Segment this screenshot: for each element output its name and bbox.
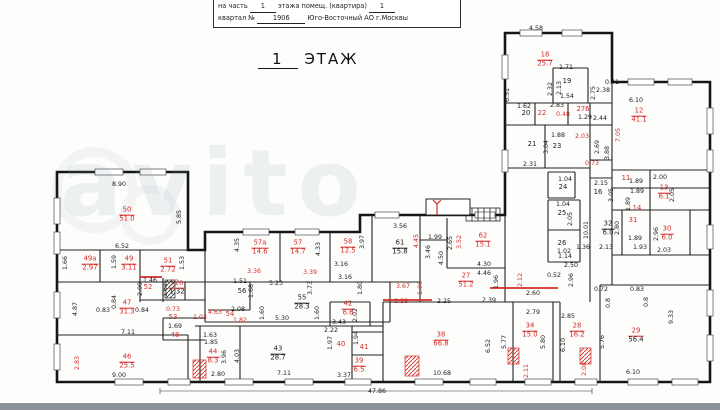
dim-label: 0.73 (585, 161, 599, 167)
dim-label: 4.30 (477, 262, 491, 268)
dim-label: 4.87 (73, 302, 79, 316)
dim-label: 3.16 (334, 262, 348, 268)
dim-label: 1.04 (558, 177, 572, 183)
dim-label: 6.10 (561, 338, 567, 352)
dim-label: 1.82 (233, 318, 247, 324)
dim-label: 5.23 (269, 281, 283, 287)
room-label: 3866.8 (433, 332, 448, 349)
dim-label: 1.69 (168, 324, 182, 330)
dim-label: 0.48 (556, 112, 570, 118)
dim-label: 2.80 (615, 221, 621, 235)
room-label: 5051.0 (119, 207, 134, 224)
dim-label: 3.97 (360, 235, 366, 249)
dim-label: 7.11 (277, 371, 291, 377)
dim-label: 5.76 (600, 335, 606, 349)
dim-label: 2.09 (138, 282, 144, 296)
dim-label: 2.85 (561, 314, 575, 320)
dim-label: 4.35 (235, 238, 241, 252)
room-label: 5528.3 (294, 295, 309, 312)
dim-label: 3.88 (605, 146, 611, 160)
dim-label: 2.38 (596, 88, 610, 94)
labels-layer: 5051.049а2.97493.11512.724731.34625.5525… (0, 0, 720, 410)
dim-label: 5.80 (541, 335, 547, 349)
dim-label: 6.51 (505, 88, 511, 102)
dim-label: 2.22 (324, 328, 338, 334)
room-label: 2751.2 (458, 273, 473, 290)
dim-label: 3.56 (393, 224, 407, 230)
dim-label: 1.96 (494, 275, 500, 289)
dim-label: 2.05 (670, 188, 676, 202)
dim-label: 1.36 (576, 245, 590, 251)
dim-label: 1.89 (630, 189, 644, 195)
dim-label: 1.89 (628, 236, 642, 242)
dim-label: 1.29 (578, 115, 592, 121)
dim-label: 3.96 (222, 350, 228, 364)
room-label: 6115.8 (392, 240, 407, 257)
dim-label: 2.02 (353, 308, 359, 322)
room-label: 396.5 (353, 358, 366, 375)
dim-label: 2.08 (231, 307, 245, 313)
dim-label: 2.60 (526, 291, 540, 297)
dim-label: 0.8 (644, 297, 650, 307)
room-label: 40 (335, 341, 348, 349)
room-label: 20 (520, 110, 533, 118)
room-label: 2816.2 (569, 323, 584, 340)
dim-label: 2.28 (394, 299, 408, 305)
room-label: 6215.1 (475, 233, 490, 250)
dim-label: 1.61 (163, 283, 169, 297)
dim-label: 2.11 (524, 364, 530, 378)
dim-label: 47.86 (368, 389, 386, 395)
dim-label: 8.90 (112, 182, 126, 188)
room-label: 4731.3 (119, 300, 134, 317)
room-label: 4625.5 (119, 354, 134, 371)
room-label: 14 (631, 205, 644, 213)
room-label: 41 (358, 344, 371, 352)
room-label: 57а14.6 (252, 240, 269, 257)
floorplan-page: avito на часть 1 этажа помещ. (квартира)… (0, 0, 720, 410)
dim-label: 1.04 (556, 202, 570, 208)
dim-label: 1.68 (249, 284, 255, 298)
dim-label: 2.03 (575, 134, 589, 140)
dim-label: 3.46 (426, 245, 432, 259)
room-label: 5812.5 (340, 239, 355, 256)
dim-label: 1.99 (428, 235, 442, 241)
room-label: 26 (556, 240, 569, 248)
dim-label: 3.04 (544, 140, 550, 154)
room-label: 2956.4 (628, 328, 643, 345)
dim-label: 0.52 (547, 273, 561, 279)
dim-label: 10.01 (584, 221, 590, 239)
dim-label: 3.16 (338, 275, 352, 281)
dim-label: 2.80 (211, 372, 225, 378)
dim-label: 2.83 (75, 356, 81, 370)
dim-label: 1.62 (517, 104, 531, 110)
room-label: 53 (167, 314, 180, 322)
dim-label: 4.63 (208, 310, 222, 316)
dim-label: 1.60 (260, 306, 266, 320)
dim-label: 3.36 (247, 269, 261, 275)
dim-label: 5.77 (502, 335, 508, 349)
room-label: 448.3 (207, 349, 220, 366)
dim-label: 2.00 (653, 175, 667, 181)
room-label: 21 (526, 141, 539, 149)
dim-label: 2.83 (550, 103, 564, 109)
room-label: 16 (592, 189, 605, 197)
room-label: 512.72 (160, 258, 175, 275)
dim-label: 9.00 (112, 373, 126, 379)
dim-label: 4.50 (439, 251, 445, 265)
dim-label: 6.10 (629, 98, 643, 104)
dim-label: 3.67 (396, 284, 410, 290)
dim-label: 3.39 (303, 270, 317, 276)
dim-label: 1.89 (629, 179, 643, 185)
dim-label: 10.68 (433, 371, 451, 377)
room-label: 31 (627, 217, 640, 225)
dim-label: 0.84 (112, 295, 118, 309)
dim-label: 1.71 (559, 65, 573, 71)
dim-label: 1.46 (143, 278, 157, 284)
dim-label: 1.51 (233, 279, 247, 285)
dim-label: 1.94 (354, 331, 360, 345)
dim-label: 1.59 (112, 255, 118, 269)
dim-label: 2.31 (523, 162, 537, 168)
dim-label: 2.05 (568, 212, 574, 226)
room-label: 23 (551, 143, 564, 151)
dim-label: 3.43 (332, 320, 346, 326)
dim-label: 3.73 (308, 281, 314, 295)
dim-label: 2.79 (526, 310, 540, 316)
dim-label: 7.05 (616, 128, 622, 142)
dim-label: 1.66 (63, 256, 69, 270)
dim-label: 2.65 (448, 236, 454, 250)
dim-label: 7.11 (121, 330, 135, 336)
room-label: 1241.1 (631, 108, 646, 125)
dim-label: 2.12 (518, 273, 524, 287)
dim-label: 3.37 (337, 373, 351, 379)
dim-label: 1.80 (358, 281, 364, 295)
dim-label: 0.84 (135, 308, 149, 314)
dim-label: 4.33 (316, 242, 322, 256)
dim-label: 2.69 (595, 140, 601, 154)
dim-label: 4.03 (235, 349, 241, 363)
room-label: 276 (575, 106, 592, 114)
room-label: 24 (557, 184, 570, 192)
bottom-strip (0, 403, 720, 410)
dim-label: 2.08 (582, 362, 588, 376)
dim-label: 0.41 (605, 80, 619, 86)
dim-label: 9.33 (669, 310, 675, 324)
dim-label: 2.96 (569, 273, 575, 287)
room-label: 56 (236, 288, 249, 296)
room-label: 4328.7 (270, 346, 285, 363)
dim-label: 2.39 (482, 298, 496, 304)
dim-label: 0.83 (630, 287, 644, 293)
room-label: 52а1.32 (169, 280, 186, 297)
dim-label: 5.85 (177, 210, 183, 224)
dim-label: 6.10 (626, 370, 640, 376)
room-label: 326.0 (602, 221, 615, 238)
dim-label: 2.25 (437, 299, 451, 305)
dim-label: 4.58 (529, 26, 543, 32)
dim-label: 2.13 (599, 245, 613, 251)
room-label: 3415.0 (522, 323, 537, 340)
dim-label: 2.44 (593, 116, 607, 122)
dim-label: 1.88 (551, 133, 565, 139)
dim-label: 1.54 (560, 94, 574, 100)
dim-label: 4.46 (477, 271, 491, 277)
dim-label: 0.8 (606, 298, 612, 308)
dim-label: 2.03 (657, 248, 671, 254)
dim-label: 3.05 (609, 188, 615, 202)
dim-label: 6.52 (486, 339, 492, 353)
dim-label: 3.52 (457, 235, 463, 249)
dim-label: 1.02 (557, 249, 571, 255)
dim-label: 6.52 (115, 244, 129, 250)
dim-label: 1.03 (193, 315, 207, 321)
dim-label: 2.50 (564, 263, 578, 269)
dim-label: 0.72 (594, 287, 608, 293)
room-label: 1825.7 (537, 52, 552, 69)
dim-label: 1.53 (180, 256, 186, 270)
dim-label: 1.06 (418, 281, 424, 295)
dim-label: 4.45 (414, 234, 420, 248)
room-label: 22 (536, 110, 549, 118)
dim-label: 2.96 (654, 227, 660, 241)
dim-label: 2.15 (594, 181, 608, 187)
room-label: 493.11 (121, 256, 136, 273)
dim-label: 1.89 (626, 197, 632, 211)
dim-label: 1.93 (633, 245, 647, 251)
room-label: 306.0 (661, 226, 674, 243)
dim-label: 0.73 (166, 307, 180, 313)
room-label: 5714.7 (290, 240, 305, 257)
dim-label: 1.60 (315, 306, 321, 320)
room-label: 49а2.97 (82, 256, 99, 273)
dim-label: 1.97 (328, 336, 334, 350)
dim-label: 5.30 (275, 316, 289, 322)
dim-label: 2.32 (548, 82, 554, 96)
dim-label: 0.83 (96, 308, 110, 314)
dim-label: 1.85 (204, 340, 218, 346)
room-label: 48 (169, 332, 182, 340)
